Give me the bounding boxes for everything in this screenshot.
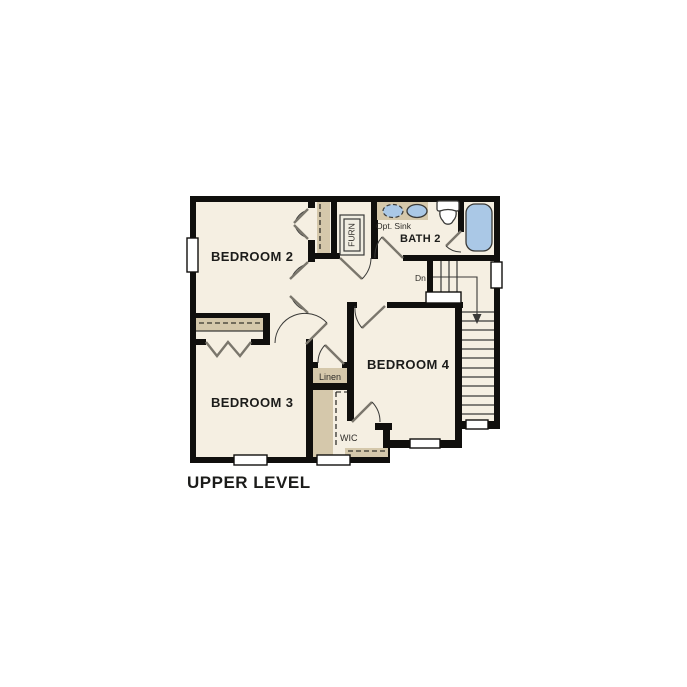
down-label: Dn [415, 273, 426, 283]
page-title: UPPER LEVEL [187, 473, 311, 492]
linen-label: Linen [319, 372, 341, 382]
bath2-label: BATH 2 [400, 233, 441, 245]
sink-icon [407, 205, 427, 218]
wic-label: WIC [340, 433, 358, 443]
bedroom3-label: BEDROOM 3 [211, 395, 293, 410]
floor-plan-svg: BEDROOM 2 BEDROOM 3 BEDROOM 4 BATH 2 Opt… [0, 0, 687, 687]
optional-sink-icon [383, 205, 403, 218]
furnace-label: FURN [346, 223, 356, 247]
bedroom4-label: BEDROOM 4 [367, 357, 450, 372]
bedroom2-label: BEDROOM 2 [211, 249, 293, 264]
floor-plan: BEDROOM 2 BEDROOM 3 BEDROOM 4 BATH 2 Opt… [0, 0, 687, 687]
bathtub-icon [466, 204, 492, 251]
window [466, 420, 488, 429]
opt-sink-label: Opt. Sink [376, 221, 412, 231]
window [317, 455, 350, 465]
stair-landing [426, 292, 461, 303]
window [491, 262, 502, 288]
window [234, 455, 267, 465]
window [187, 238, 198, 272]
window [410, 439, 440, 448]
